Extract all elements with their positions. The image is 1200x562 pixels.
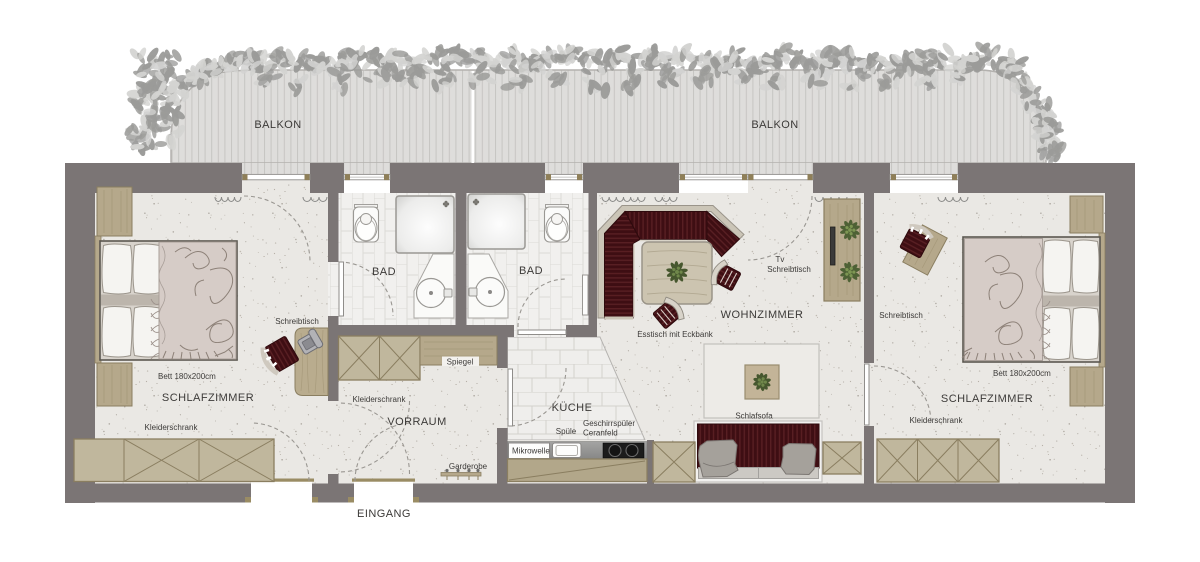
svg-text:Mikrowelle: Mikrowelle (512, 447, 550, 456)
svg-text:Tv: Tv (776, 255, 785, 264)
svg-text:Kleiderschrank: Kleiderschrank (353, 395, 407, 404)
svg-text:Bett 180x200cm: Bett 180x200cm (993, 369, 1051, 378)
svg-text:Schreibtisch: Schreibtisch (275, 317, 319, 326)
svg-text:BALKON: BALKON (751, 119, 798, 131)
svg-text:Spiegel: Spiegel (447, 358, 474, 367)
svg-text:Ceranfeld: Ceranfeld (583, 429, 618, 438)
svg-text:BAD: BAD (372, 266, 396, 278)
svg-text:EINGANG: EINGANG (357, 508, 411, 520)
svg-text:Spüle: Spüle (556, 427, 577, 436)
svg-text:Kleiderschrank: Kleiderschrank (910, 416, 964, 425)
svg-text:Schreibtisch: Schreibtisch (879, 311, 923, 320)
svg-text:Schlafsofa: Schlafsofa (735, 412, 773, 421)
svg-text:Kleiderschrank: Kleiderschrank (145, 423, 199, 432)
svg-text:Geschirrspüler: Geschirrspüler (583, 419, 635, 428)
svg-text:VORRAUM: VORRAUM (387, 416, 446, 428)
svg-text:BAD: BAD (519, 265, 543, 277)
svg-text:BALKON: BALKON (254, 119, 301, 131)
svg-text:WOHNZIMMER: WOHNZIMMER (721, 309, 804, 321)
svg-text:Bett 180x200cm: Bett 180x200cm (158, 372, 216, 381)
svg-text:Schreibtisch: Schreibtisch (767, 265, 811, 274)
svg-text:SCHLAFZIMMER: SCHLAFZIMMER (162, 392, 254, 404)
svg-text:Garderobe: Garderobe (449, 462, 488, 471)
svg-text:Esstisch mit Eckbank: Esstisch mit Eckbank (637, 330, 714, 339)
svg-text:SCHLAFZIMMER: SCHLAFZIMMER (941, 393, 1033, 405)
svg-text:KÜCHE: KÜCHE (552, 402, 593, 414)
